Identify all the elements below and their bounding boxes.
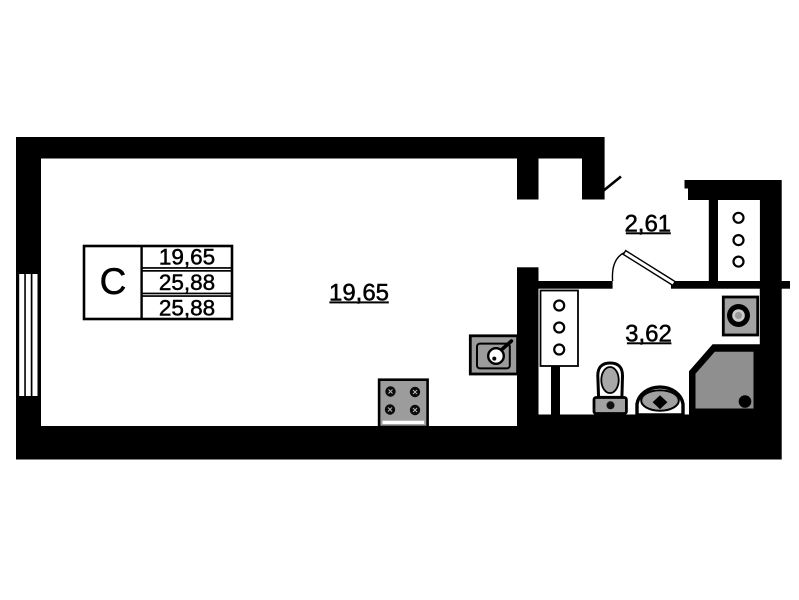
svg-text:25,88: 25,88	[159, 296, 215, 321]
svg-text:19,65: 19,65	[159, 244, 215, 269]
svg-text:25,88: 25,88	[159, 270, 215, 295]
svg-text:С: С	[100, 261, 127, 302]
